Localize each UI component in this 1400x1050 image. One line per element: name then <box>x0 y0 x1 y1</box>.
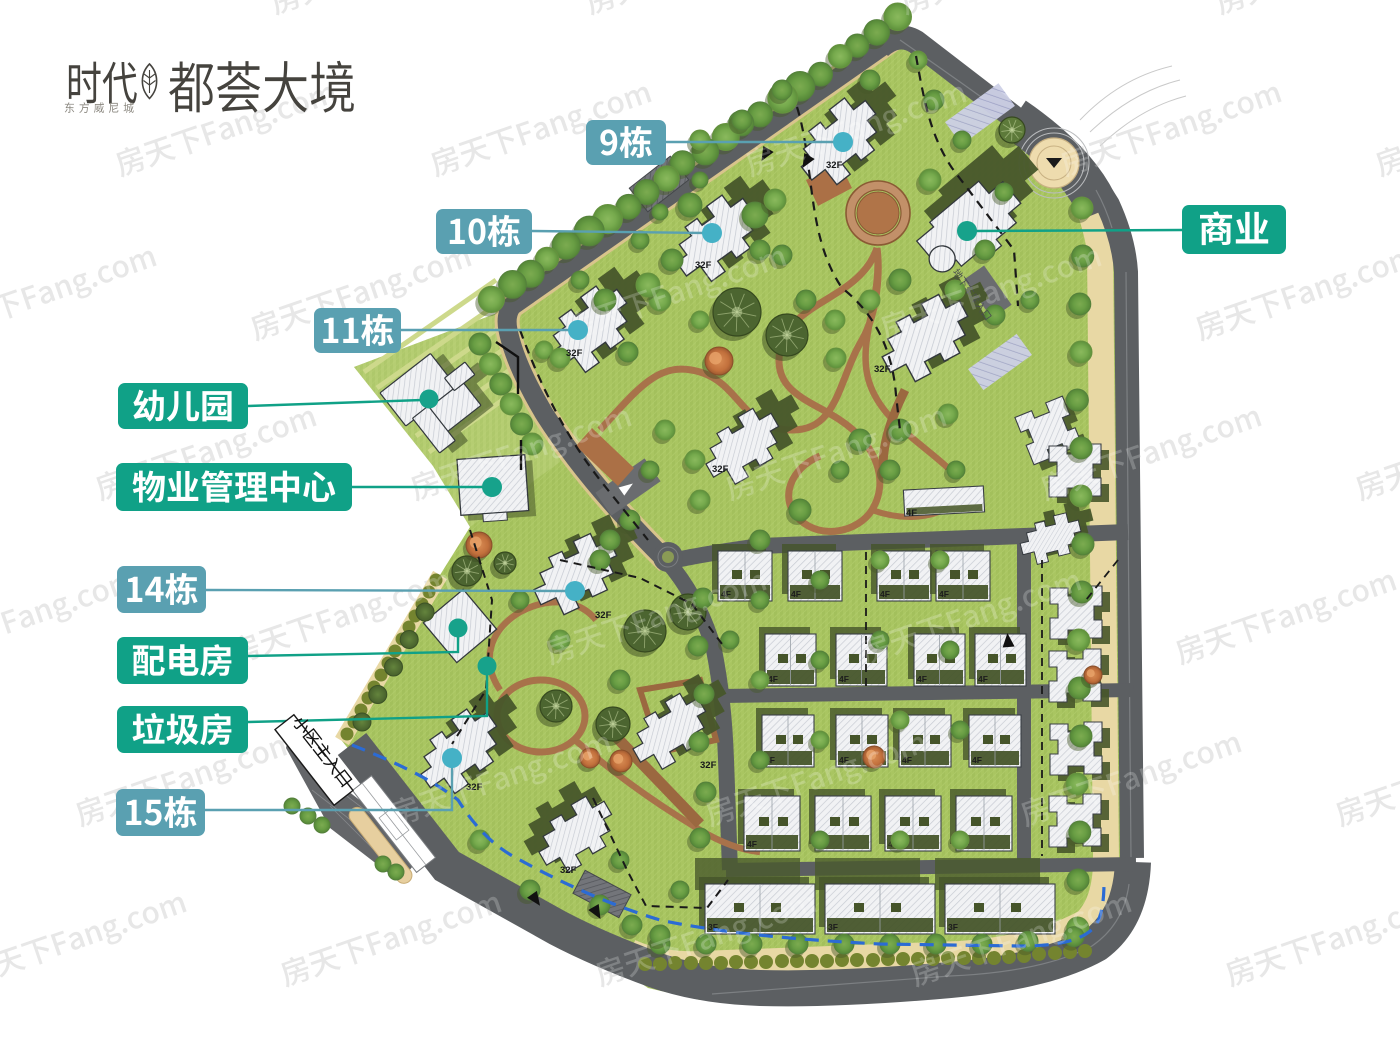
svg-text:4F: 4F <box>839 674 849 684</box>
svg-text:4F: 4F <box>939 589 949 599</box>
svg-text:4F: 4F <box>917 674 927 684</box>
svg-text:32F: 32F <box>712 464 729 475</box>
svg-text:32F: 32F <box>826 160 843 171</box>
svg-text:4F: 4F <box>880 589 890 599</box>
svg-text:4F: 4F <box>972 755 982 765</box>
svg-text:32F: 32F <box>560 865 577 876</box>
svg-text:4F: 4F <box>791 589 801 599</box>
svg-text:32F: 32F <box>566 348 583 359</box>
svg-text:3F: 3F <box>948 922 958 932</box>
svg-text:4F: 4F <box>906 508 917 519</box>
svg-text:32F: 32F <box>695 260 712 271</box>
svg-text:4F: 4F <box>978 674 988 684</box>
svg-text:3F: 3F <box>828 922 838 932</box>
svg-text:4F: 4F <box>747 839 757 849</box>
svg-text:4F: 4F <box>768 674 778 684</box>
svg-text:32F: 32F <box>700 760 717 771</box>
svg-text:32F: 32F <box>874 364 891 375</box>
